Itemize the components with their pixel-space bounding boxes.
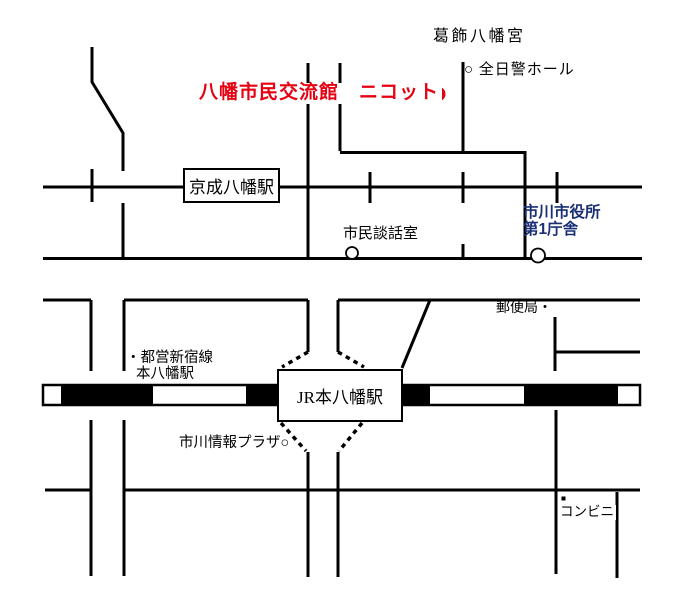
station-street-pair [308,300,338,577]
post-office-street [555,317,640,574]
danwashitsu-marker [346,247,358,259]
jr-station-label: JR本八幡駅 [297,383,383,408]
label-ichikawa-city-hall: 市川市役所 第1庁舎 [523,204,601,238]
keisei-station-label: 京成八幡駅 [189,173,274,198]
city-hall-marker [531,249,545,263]
label-zennikkei-hall: ○ 全日警ホール [464,62,575,78]
label-konbini: コンビニ [558,505,616,520]
station-approach-diagonal [402,300,430,368]
label-shimin-danwashitsu: 市民談話室 [343,226,418,242]
access-map: 京成八幡駅 JR本八幡駅 葛飾八幡宮 ○ 全日警ホール 八幡市民交流館 ニコット… [0,0,700,610]
toei-line1: ・都営新宿線 [126,351,213,367]
label-post-office: 郵便局・ [496,301,552,316]
label-ichikawa-joho-plaza: 市川情報プラザ○ [179,436,289,452]
west-street-pair [91,300,124,576]
jr-motoyawata-station-box: JR本八幡駅 [277,369,403,422]
konbini-marker-dot [562,497,566,501]
city-hall-line1: 市川市役所 [523,204,601,221]
label-katsushika-hachimangu: 葛飾八幡宮 [433,28,526,45]
city-hall-line2: 第1庁舎 [523,221,601,238]
label-destination-nicotto: 八幡市民交流館 ニコット [196,83,442,104]
keisei-yawata-station-box: 京成八幡駅 [183,168,280,203]
northwest-curved-street [92,47,123,171]
toei-line2: 本八幡駅 [126,367,213,383]
label-toei-shinjuku-line: ・都営新宿線 本八幡駅 [126,351,213,383]
